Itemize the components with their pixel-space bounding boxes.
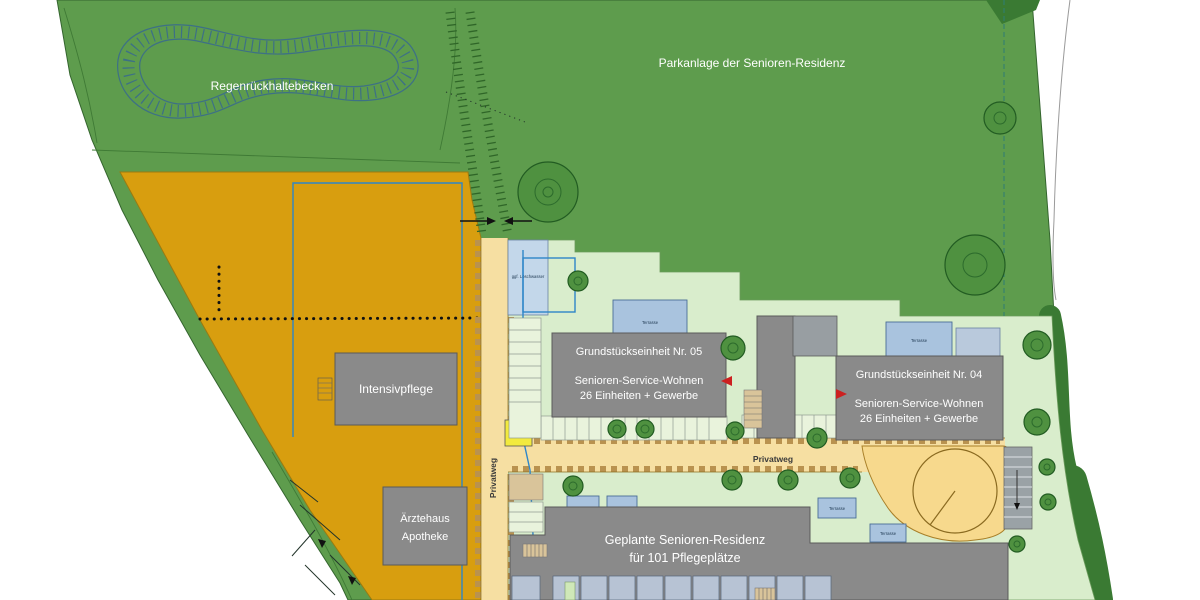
tree-symbol bbox=[984, 102, 1016, 134]
roof-section bbox=[956, 328, 1000, 356]
tree-symbol bbox=[840, 468, 860, 488]
unit05-label-2: Senioren-Service-Wohnen bbox=[575, 375, 704, 387]
parking-row bbox=[541, 416, 727, 440]
tree-symbol bbox=[518, 162, 578, 222]
terrace-label: Terrasse bbox=[880, 531, 897, 536]
tree-symbol bbox=[721, 336, 745, 360]
building-connector bbox=[757, 316, 795, 438]
building-aerztehaus bbox=[383, 487, 467, 565]
terrace bbox=[567, 496, 599, 508]
fire-water-label: ggf. Löschwasser bbox=[512, 274, 545, 279]
basin-label: Regenrückhaltebecken bbox=[211, 79, 334, 93]
unit05-label-1: Grundstückseinheit Nr. 05 bbox=[576, 346, 703, 358]
terrace-label: Terrasse bbox=[642, 320, 659, 325]
aerztehaus-label-2: Apotheke bbox=[402, 531, 448, 543]
tree-symbol bbox=[1039, 459, 1055, 475]
parking-strip bbox=[1004, 447, 1032, 529]
road-privatweg-vertical bbox=[481, 238, 508, 600]
unit05-label-3: 26 Einheiten + Gewerbe bbox=[580, 390, 698, 402]
terrace bbox=[607, 496, 637, 508]
residenz-label-1: Geplante Senioren-Residenz bbox=[605, 533, 766, 547]
unit04-label-1: Grundstückseinheit Nr. 04 bbox=[856, 369, 983, 381]
parking-row bbox=[509, 318, 541, 438]
stairs-symbol bbox=[755, 588, 775, 600]
unit04-label-2: Senioren-Service-Wohnen bbox=[855, 398, 984, 410]
tree-symbol bbox=[778, 470, 798, 490]
site-plan: Regenrückhaltebecken Parkanlage der Seni… bbox=[0, 0, 1200, 600]
park-label: Parkanlage der Senioren-Residenz bbox=[659, 56, 846, 70]
tree-symbol bbox=[568, 271, 588, 291]
stairs-symbol bbox=[744, 390, 762, 428]
intensivpflege-label: Intensivpflege bbox=[359, 382, 433, 396]
road-label-privatweg-horizontal: Privatweg bbox=[753, 454, 793, 464]
road-label-privatweg-vertical: Privatweg bbox=[488, 458, 498, 498]
terrace-label: Terrasse bbox=[829, 506, 846, 511]
tree-symbol bbox=[608, 420, 626, 438]
tree-symbol bbox=[1024, 409, 1050, 435]
tree-symbol bbox=[807, 428, 827, 448]
terrace bbox=[613, 300, 687, 333]
site-plan-drawing: Regenrückhaltebecken Parkanlage der Seni… bbox=[0, 0, 1200, 600]
unit04-label-3: 26 Einheiten + Gewerbe bbox=[860, 413, 978, 425]
tree-symbol bbox=[1040, 494, 1056, 510]
roof-section bbox=[793, 316, 837, 356]
terrace-label: Terrasse bbox=[911, 338, 928, 343]
tree-symbol bbox=[563, 476, 583, 496]
room-sections bbox=[512, 576, 831, 600]
tree-symbol bbox=[1023, 331, 1051, 359]
stairs-symbol bbox=[523, 544, 547, 557]
tree-symbol bbox=[945, 235, 1005, 295]
tree-symbol bbox=[636, 420, 654, 438]
road-edge-line bbox=[1053, 0, 1070, 300]
tree-symbol bbox=[1009, 536, 1025, 552]
tree-symbol bbox=[726, 422, 744, 440]
residenz-label-2: für 101 Pflegeplätze bbox=[629, 551, 740, 565]
tree-symbol bbox=[722, 470, 742, 490]
aerztehaus-label-1: Ärztehaus bbox=[400, 513, 450, 525]
parking-row bbox=[509, 474, 543, 532]
